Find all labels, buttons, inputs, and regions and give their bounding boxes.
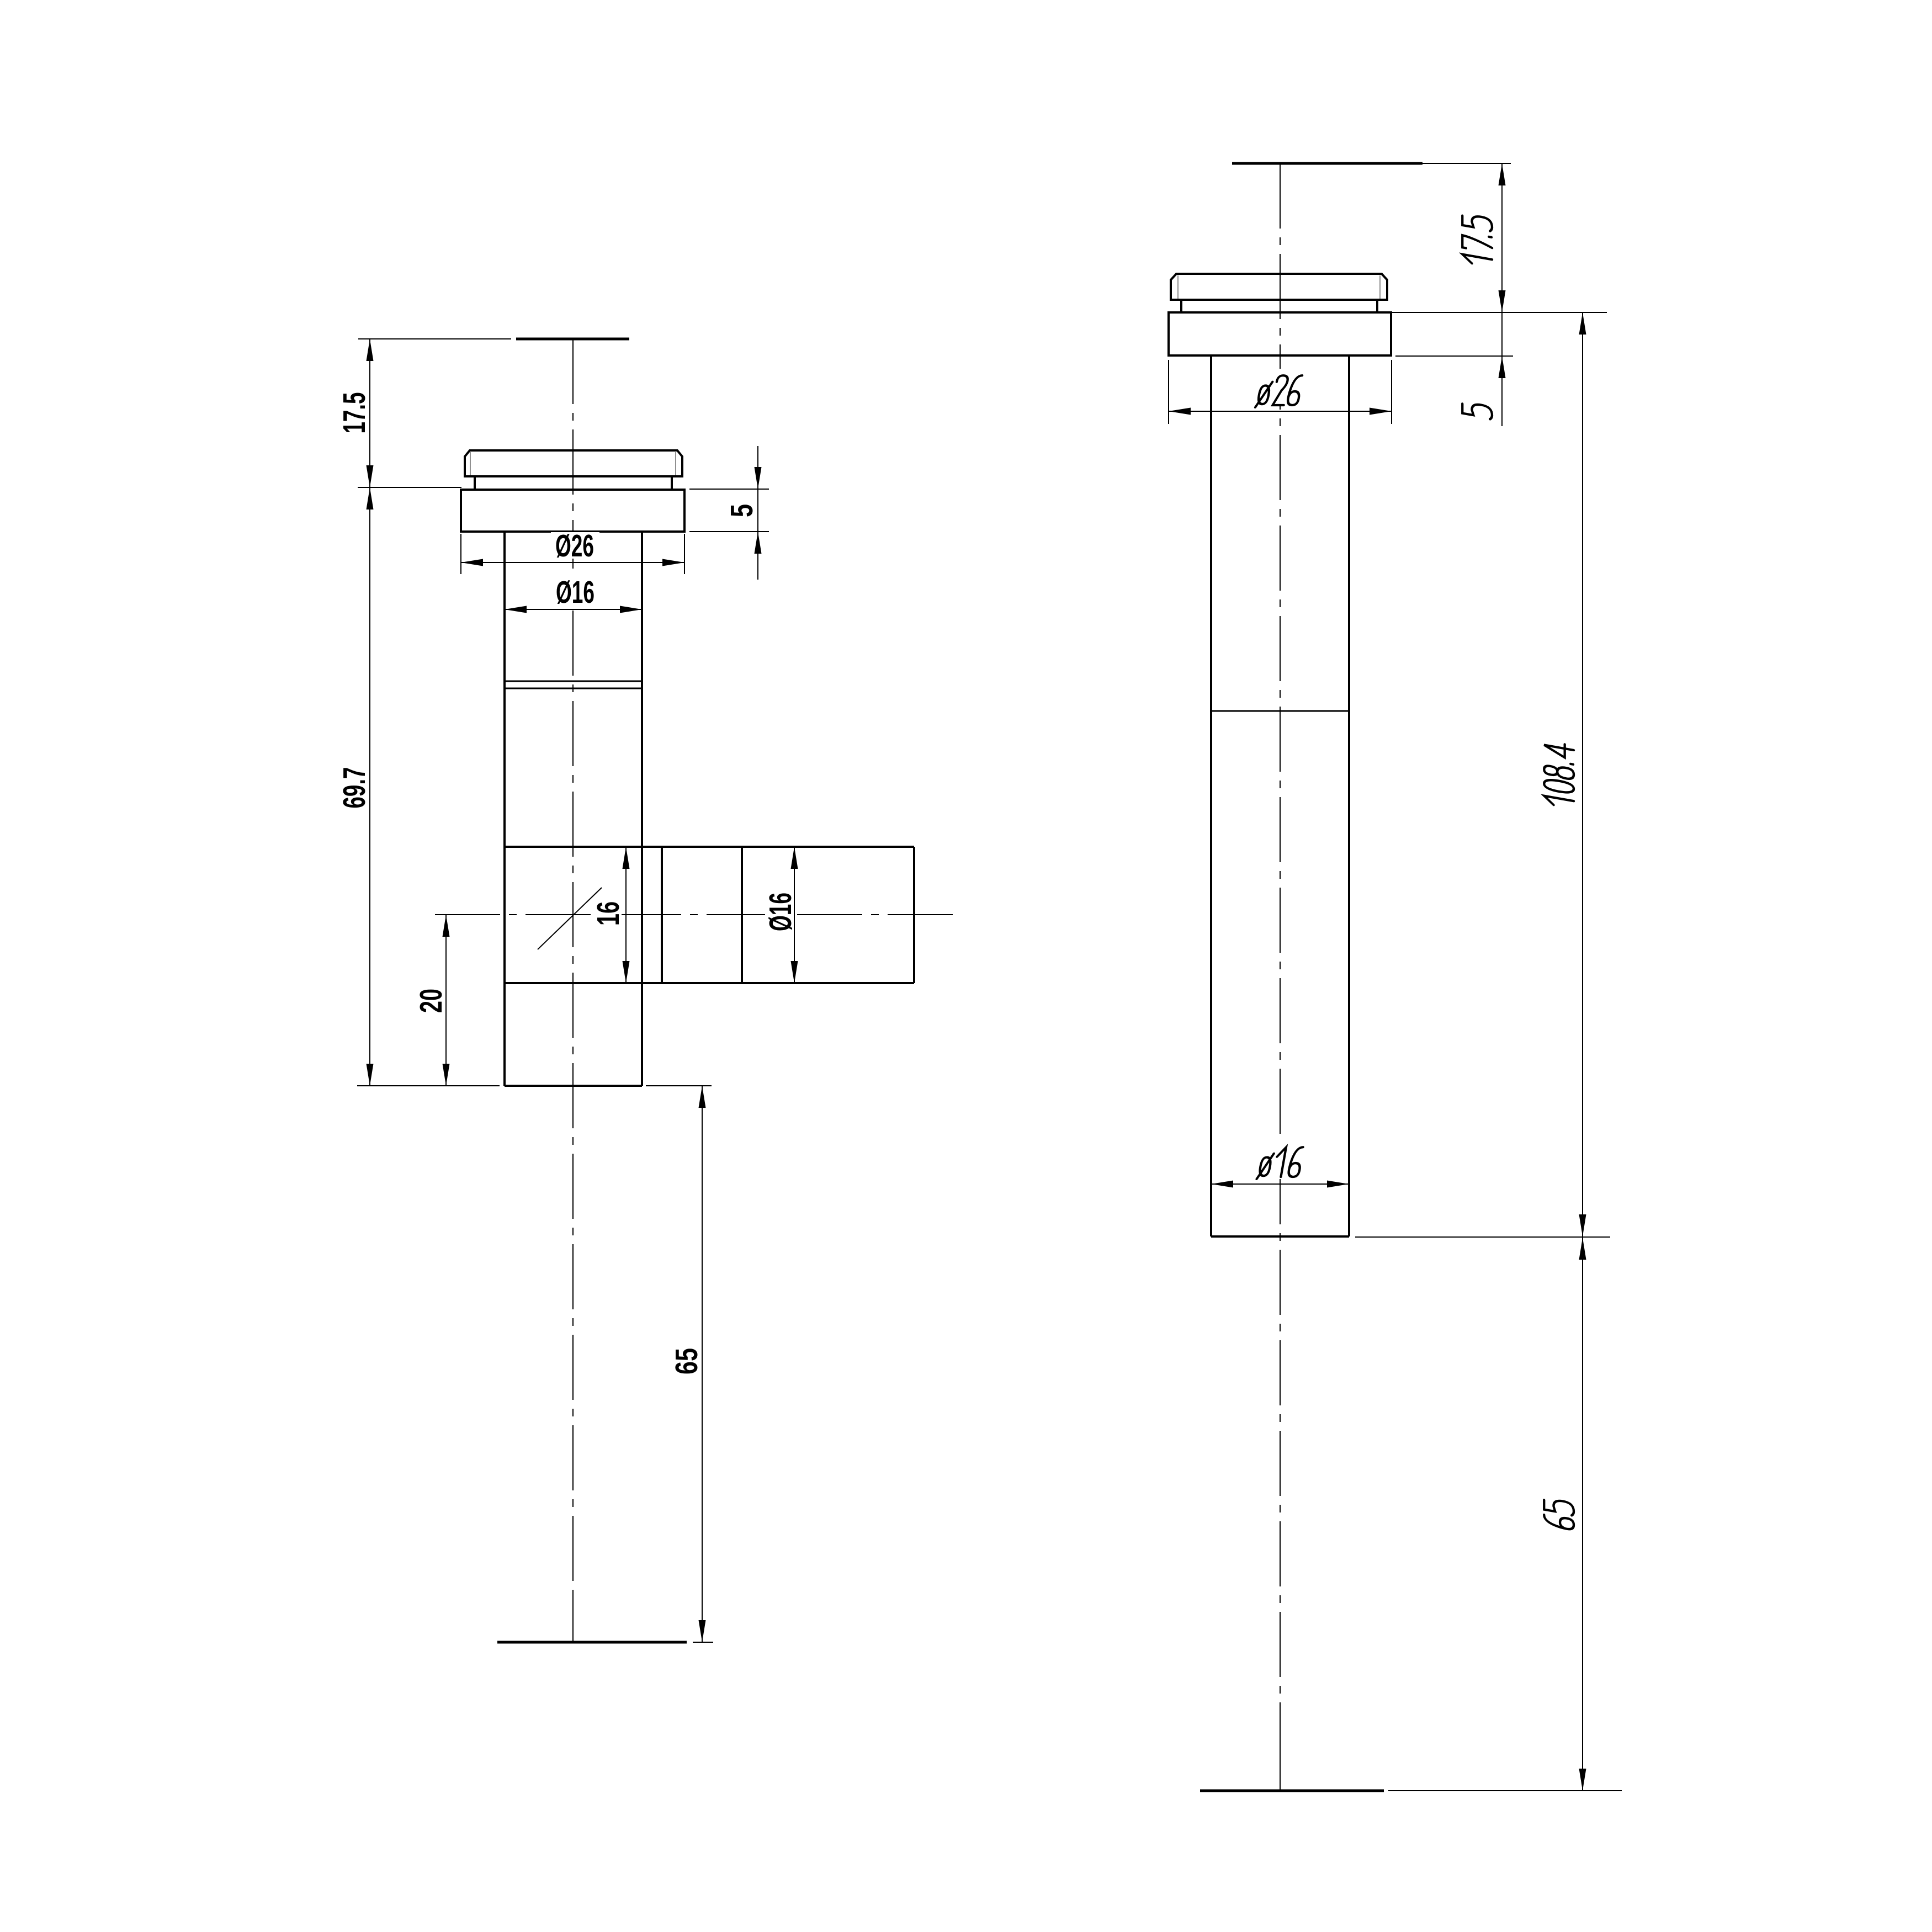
svg-text:20: 20 [413, 989, 449, 1013]
svg-text:Ø16: Ø16 [763, 893, 798, 931]
svg-text:16: 16 [591, 901, 626, 926]
svg-text:5: 5 [724, 504, 760, 517]
svg-text:65: 65 [669, 1348, 704, 1374]
svg-text:Ø16: Ø16 [556, 575, 595, 610]
svg-text:17.5: 17.5 [337, 392, 372, 434]
svg-text:69.7: 69.7 [337, 767, 372, 809]
svg-text:Ø26: Ø26 [555, 528, 594, 564]
